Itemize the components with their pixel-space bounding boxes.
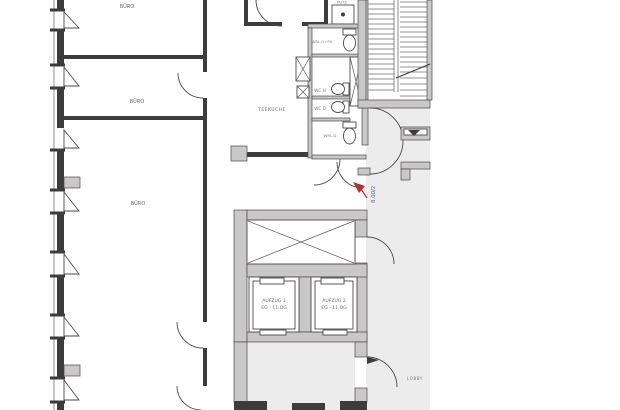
facade-wall bbox=[50, 0, 80, 410]
vent-dot-icon bbox=[341, 13, 345, 17]
window-icon bbox=[64, 12, 79, 400]
wc-block: PUTZ bbox=[296, 0, 368, 188]
shaft-x-large-icon bbox=[247, 220, 355, 264]
column bbox=[231, 146, 247, 161]
radiator bbox=[64, 365, 80, 376]
room-label-teekueche: TEEKÜCHE bbox=[257, 106, 286, 113]
staircase bbox=[358, 0, 432, 108]
room-label-wrl-d: WRL.D bbox=[324, 133, 337, 138]
elevator-name: AUFZUG 2 bbox=[322, 298, 346, 304]
room-label-lobby: LOBBY bbox=[407, 376, 423, 381]
elevator-aufzug-2: AUFZUG 2 EG - 11.OG bbox=[311, 277, 357, 335]
door-arc bbox=[314, 159, 340, 185]
door-arc bbox=[177, 322, 203, 348]
elevator-floors: EG - 11.OG bbox=[261, 305, 287, 311]
stair-treads bbox=[368, 0, 427, 96]
floorplan-page: BÜRO BÜRO BÜRO TEEKÜCHE PUTZ bbox=[0, 0, 620, 410]
door-arc bbox=[178, 73, 203, 98]
room-label-buero-3: BÜRO bbox=[131, 200, 146, 207]
room-label-wc-d: WC D bbox=[314, 106, 326, 111]
room-label-wrl-h: WRL.H+PU bbox=[312, 39, 333, 44]
room-label-buero-1: BÜRO bbox=[120, 3, 135, 10]
door-arc bbox=[177, 386, 201, 410]
room-label-buero-2: BÜRO bbox=[130, 98, 145, 105]
elevator-name: AUFZUG 1 bbox=[262, 298, 286, 304]
room-label-putz: PUTZ bbox=[337, 1, 347, 5]
floorplan-canvas: BÜRO BÜRO BÜRO TEEKÜCHE PUTZ bbox=[0, 0, 620, 410]
exit-width-label: 8.00/2 bbox=[371, 186, 377, 203]
elevator-aufzug-1: AUFZUG 1 EG - 11.OG bbox=[249, 277, 299, 335]
room-label-wc-h: WC H bbox=[314, 88, 326, 93]
radiator bbox=[64, 177, 80, 188]
stair-direction-line bbox=[396, 64, 430, 78]
elevator-floors: EG - 11.OG bbox=[321, 305, 347, 311]
